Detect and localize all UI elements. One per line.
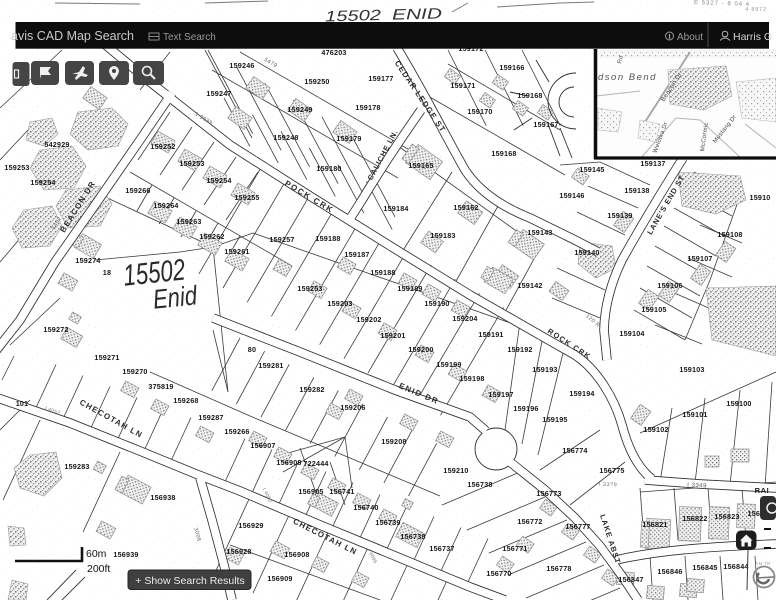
svg-text:60m: 60m [86, 548, 107, 560]
svg-text:avis CAD Map Search: avis CAD Map Search [11, 29, 134, 43]
svg-text:ENID: ENID [392, 5, 443, 23]
svg-text:+ Show Search Results: + Show Search Results [135, 575, 244, 587]
svg-text:4 8972: 4 8972 [745, 7, 767, 13]
svg-text:Harris G: Harris G [733, 31, 772, 43]
svg-text:Enid: Enid [151, 280, 199, 315]
svg-text:Text Search: Text Search [163, 32, 216, 43]
svg-text:AM TR: AM TR [755, 561, 771, 566]
svg-text:dson Bend: dson Bend [598, 72, 657, 83]
svg-text:200ft: 200ft [87, 563, 110, 575]
svg-text:About: About [677, 32, 703, 43]
